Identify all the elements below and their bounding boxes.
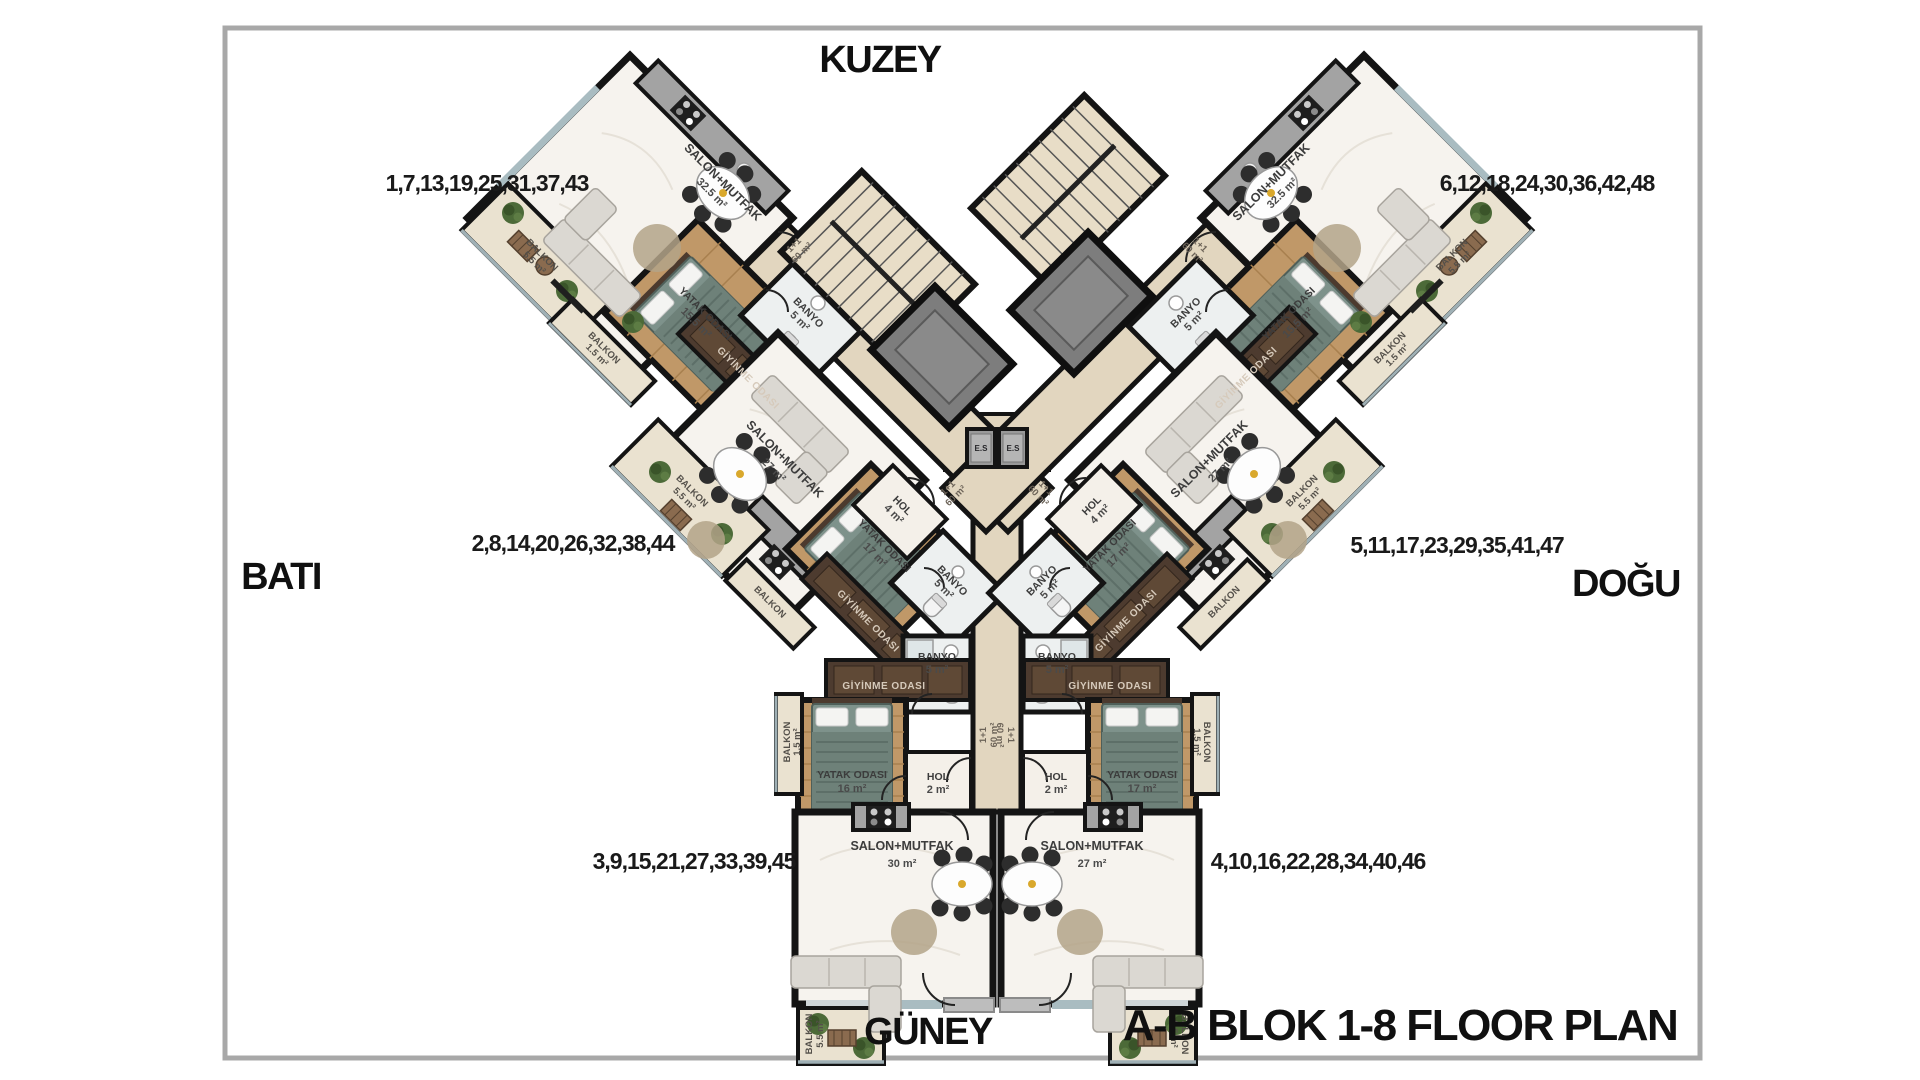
compass-north: KUZEY [819, 39, 941, 81]
apartment-numbers-a-middle: 2,8,14,20,26,32,38,44 [472, 530, 676, 556]
apartment-numbers-a-south: 3,9,15,21,27,33,39,45 [593, 848, 797, 874]
label-a3-hall: HOL2 m² [927, 771, 950, 796]
elevator-label-1: E.S [975, 444, 989, 453]
apartment-numbers-b-middle: 5,11,17,23,29,35,41,47 [1350, 532, 1564, 558]
svg-text:BALKON: BALKON [804, 1014, 815, 1055]
svg-text:SALON+MUTFAK: SALON+MUTFAK [850, 839, 953, 853]
svg-text:5 m²: 5 m² [1046, 664, 1069, 676]
compass-south: GÜNEY [864, 1010, 993, 1053]
svg-text:60 m²: 60 m² [994, 723, 1005, 748]
svg-text:2 m²: 2 m² [927, 784, 950, 796]
label-a3-dressing: GİYİNME ODASI [842, 679, 925, 692]
svg-text:2 m²: 2 m² [1045, 784, 1068, 796]
floor-plan-canvas: E.S E.S SALON+MUTFAK32.5 m² YATAK ODASI1… [0, 0, 1920, 1080]
apartment-numbers-b-south: 4,10,16,22,28,34,40,46 [1211, 848, 1426, 874]
plan-title: A-B BLOK 1-8 FLOOR PLAN [1123, 1001, 1678, 1050]
svg-text:17 m²: 17 m² [1128, 783, 1157, 795]
svg-text:SALON+MUTFAK: SALON+MUTFAK [1040, 839, 1143, 853]
svg-text:1+1: 1+1 [978, 726, 989, 743]
svg-text:27 m²: 27 m² [1078, 858, 1107, 870]
label-b3-hall: HOL2 m² [1045, 771, 1068, 796]
svg-text:YATAK ODASI: YATAK ODASI [817, 769, 887, 781]
label-b3-dressing: GİYİNME ODASI [1068, 679, 1151, 692]
compass-east: DOĞU [1572, 561, 1680, 605]
svg-text:HOL: HOL [927, 771, 950, 783]
svg-text:YATAK ODASI: YATAK ODASI [1107, 769, 1177, 781]
svg-text:BANYO: BANYO [918, 651, 956, 663]
svg-text:5 m²: 5 m² [926, 664, 949, 676]
svg-text:GİYİNME ODASI: GİYİNME ODASI [1068, 679, 1151, 692]
svg-text:1.5 m²: 1.5 m² [1191, 728, 1202, 755]
svg-text:1+1: 1+1 [1005, 727, 1016, 744]
svg-text:30 m²: 30 m² [888, 858, 917, 870]
apartment-numbers-b-north: 6,12,18,24,30,36,42,48 [1440, 170, 1656, 196]
svg-text:5.5 m²: 5.5 m² [815, 1020, 826, 1047]
svg-text:BANYO: BANYO [1038, 651, 1076, 663]
elevator-label-2: E.S [1007, 444, 1021, 453]
svg-text:1.5 m²: 1.5 m² [792, 728, 803, 755]
apartment-numbers-a-north: 1,7,13,19,25,31,37,43 [386, 170, 589, 196]
svg-text:16 m²: 16 m² [838, 783, 867, 795]
compass-west: BATI [241, 556, 321, 598]
svg-text:HOL: HOL [1045, 771, 1068, 783]
svg-text:GİYİNME ODASI: GİYİNME ODASI [842, 679, 925, 692]
